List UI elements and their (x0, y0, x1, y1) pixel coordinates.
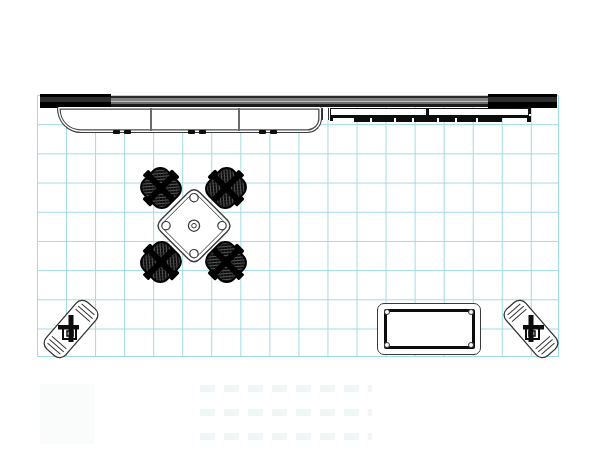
coffee-table-fastener (384, 309, 390, 315)
table-corner-disc (190, 194, 198, 202)
folding-stool-left (33, 291, 109, 367)
backwall-left-endcap (40, 94, 111, 108)
floor-plan-canvas (0, 0, 600, 450)
table-corner-disc (190, 250, 198, 258)
shelf-end-bracket (527, 116, 532, 122)
graphic-strip (354, 118, 502, 123)
coffee-table-frame (384, 309, 475, 349)
table-center-post (188, 220, 199, 231)
watermark-block (40, 384, 94, 444)
backwall-right-endcap (488, 94, 557, 108)
watermark-dash-row (200, 409, 372, 416)
counter-foot (259, 130, 266, 134)
coffee-table-fastener (468, 342, 474, 348)
table-corner-disc (162, 222, 170, 230)
shelf-divider (426, 109, 429, 115)
watermark-dash-row (200, 385, 372, 392)
counter-divider (238, 108, 240, 131)
backwall-beam (40, 96, 557, 107)
counter-divider (150, 108, 152, 131)
coffee-table-fastener (384, 342, 390, 348)
watermark-dash-row (200, 433, 372, 440)
counter-foot (124, 130, 131, 134)
shelf-end-bracket (330, 116, 333, 121)
counter-shelf-joint (322, 108, 329, 120)
conference-set (115, 145, 273, 313)
coffee-table-fastener (468, 309, 474, 315)
counter-foot (113, 130, 120, 134)
table-corner-disc (218, 222, 226, 230)
counter-foot (199, 130, 206, 134)
counter-foot (188, 130, 195, 134)
counter-foot (270, 130, 277, 134)
folding-stool-right (493, 291, 569, 367)
